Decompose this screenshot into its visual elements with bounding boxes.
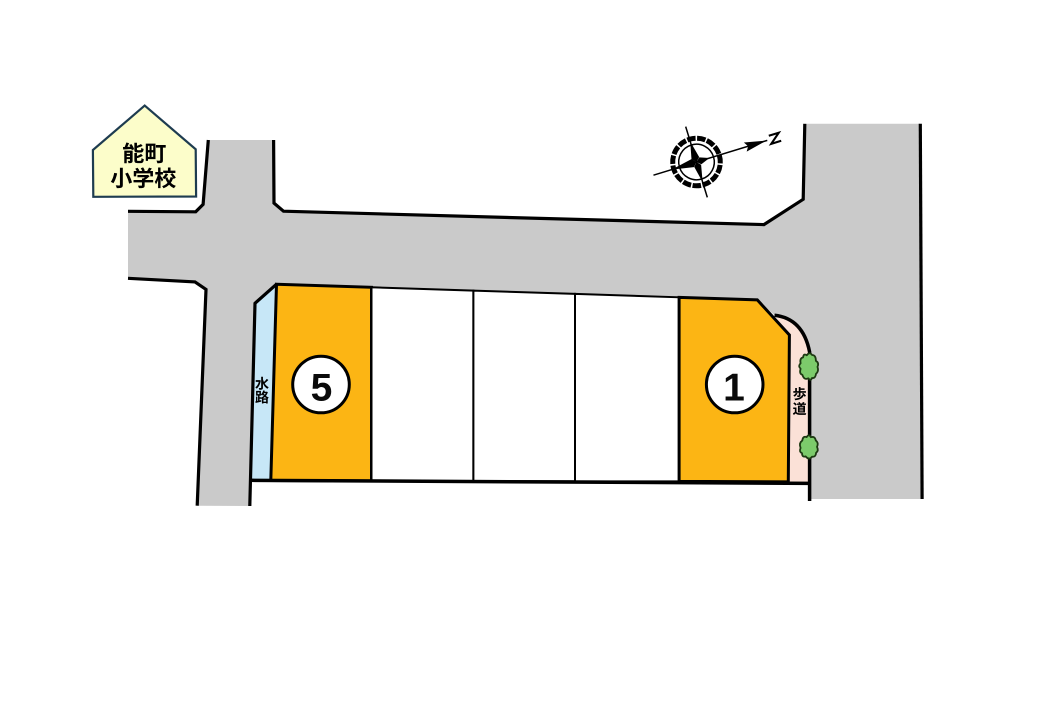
svg-text:5: 5 — [311, 367, 333, 410]
svg-text:1: 1 — [723, 367, 745, 410]
